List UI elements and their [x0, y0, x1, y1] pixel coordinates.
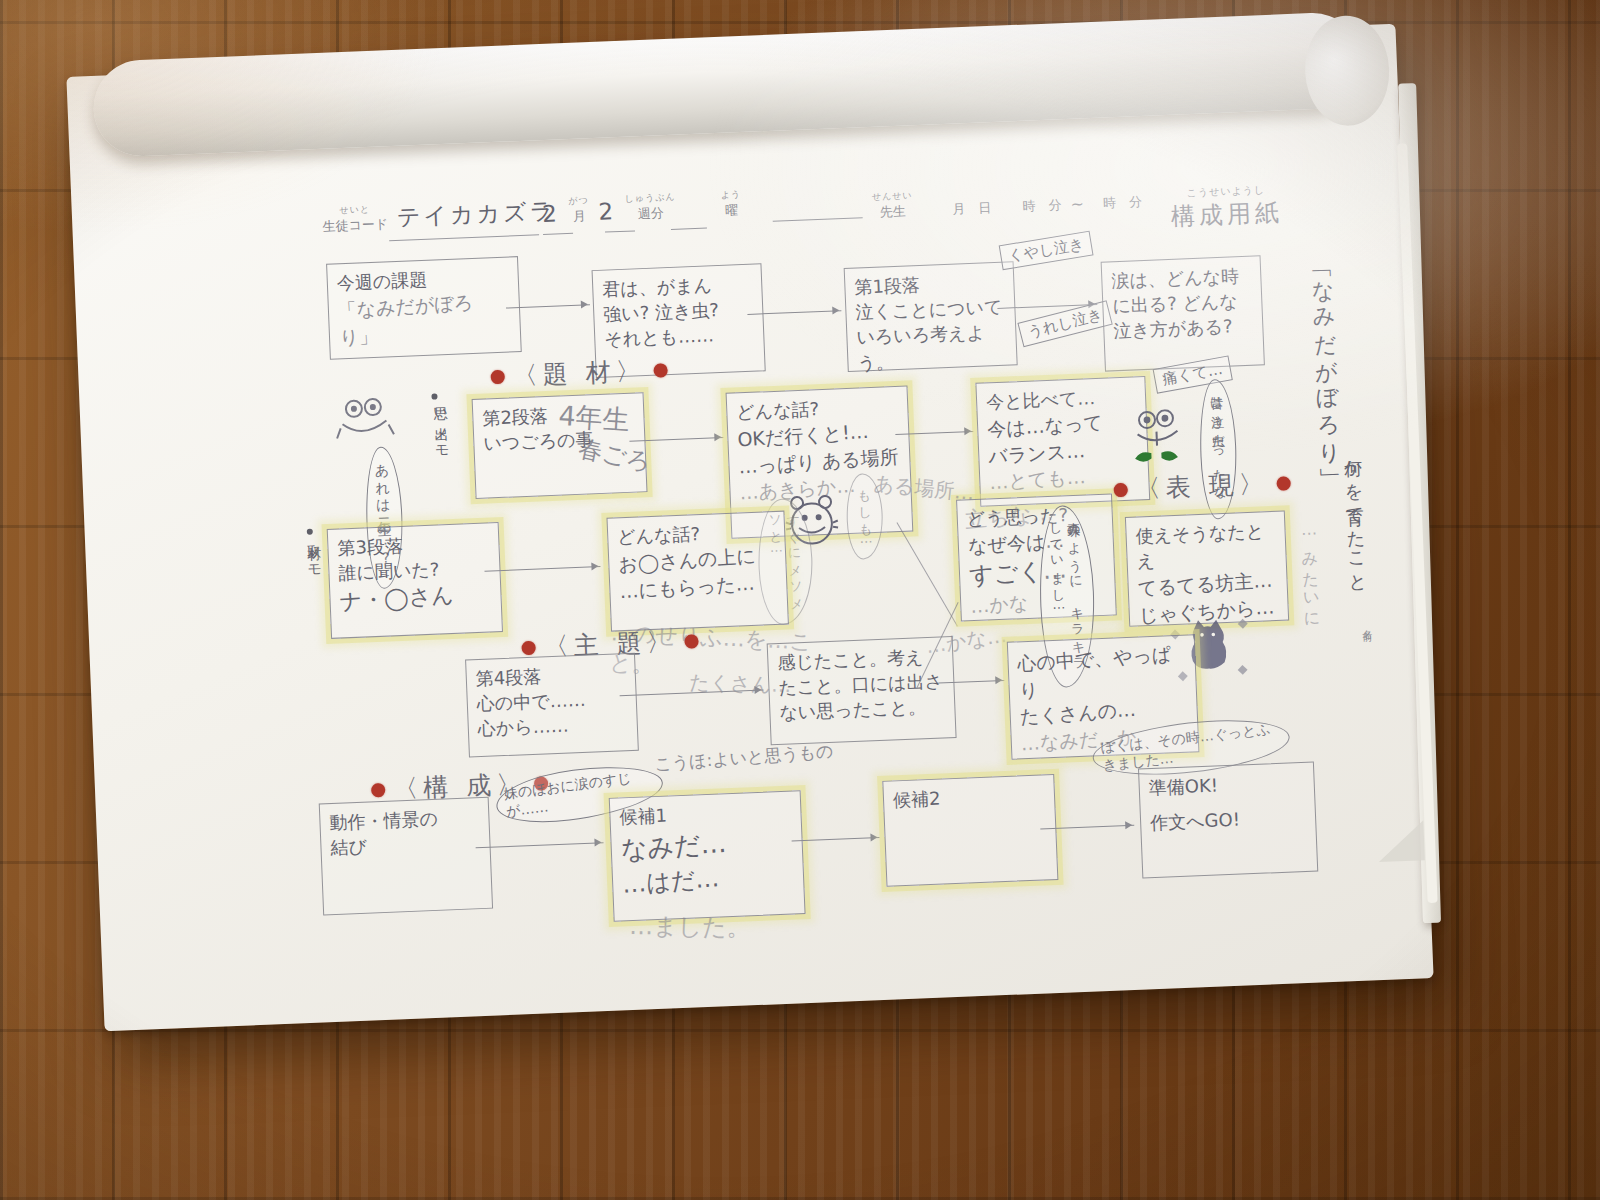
header-teacher-time: せんせい先生 月 日 時 分 ~ 時 分 [772, 180, 1147, 226]
month-value: 2 [542, 200, 561, 227]
min2-label: 分 [1129, 193, 1143, 212]
ending-line2: 結び [330, 829, 481, 860]
tag-kuyashinaki: くやし泣き [999, 231, 1094, 271]
shuzai-memo-label: 取材メモ [305, 533, 328, 654]
connector-line [896, 522, 957, 626]
teacher-ruby: せんせい [872, 189, 913, 204]
sparkle-icon [1238, 665, 1248, 675]
similes-title: 使えそうなたとえ [1135, 518, 1277, 574]
hour1-label: 時 [1022, 197, 1036, 216]
section-daizai-label: 〈題 材〉 [512, 354, 646, 392]
day-ruby: よう [721, 188, 742, 202]
red-dot [490, 369, 505, 384]
header-date: 2 がつ月 2 しゅうぶん週分 よう曜 [542, 188, 747, 227]
pencil-under-candidate1: …ました。 [629, 910, 751, 943]
tears-line3: 泣き方がある? [1113, 313, 1254, 344]
red-dot [521, 640, 536, 655]
day-label: 曜 [725, 201, 739, 220]
underline [389, 234, 539, 241]
weekly-task-theme: 「なみだがぼろり」 [337, 286, 512, 350]
min1-label: 分 [1048, 196, 1062, 215]
pencil-4th-grade: 4年生 [557, 398, 630, 439]
box-paragraph-3: 第3段落 誰に聞いた? ナ・◯さん [327, 522, 503, 639]
box-tears-when: 涙は、どんな時 に出る? どんな 泣き方がある? [1101, 255, 1265, 371]
candidate2-title: 候補2 [893, 781, 1046, 812]
month-ruby: がつ [568, 194, 589, 208]
box-what-story-2: どんな話? お◯さんの上に …にもらった… [606, 511, 788, 632]
note-kouho: こうほ:よいと思うもの [654, 740, 835, 776]
ready-line2: 作文へGO! [1150, 804, 1307, 835]
red-dot [371, 782, 386, 797]
box-weekly-task: 今週の課題 「なみだがぼろり」 [326, 256, 522, 360]
paper-curl-roll [92, 11, 1363, 158]
section-hyogen: 〈表 現〉 [1113, 466, 1291, 506]
box-ending: 動作・情景の 結び [319, 797, 493, 916]
sheet-title-block: こうせいようし 構成用紙 [1170, 182, 1284, 232]
box-feelings: 感じたこと。考え たこと。口には出さ ない思ったこと。 [767, 636, 957, 745]
hour2-label: 時 [1103, 194, 1117, 213]
box-paragraph-4: 第4段落 心の中で…… 心から…… [465, 653, 639, 758]
day2-label: 日 [978, 199, 992, 218]
page-stack-edge-2 [1397, 143, 1437, 903]
underline [773, 217, 863, 222]
box-ready-go: 準備OK! 作文へGO! [1138, 762, 1318, 879]
student-code-ruby: せいと [339, 203, 370, 217]
arrow [485, 566, 601, 572]
underline [543, 233, 573, 235]
box-candidate-2: 候補2 [882, 774, 1058, 887]
underline [671, 227, 707, 229]
margin-name-label: 名前 [1359, 621, 1375, 662]
para4-line3: 心から…… [477, 710, 628, 741]
student-code-value: テイカカズラ [396, 198, 556, 230]
doodle-smiling-frog [1129, 408, 1198, 475]
doodle-crying-frog [331, 396, 397, 455]
margin-subtitle-vertical: 何かを育てたこと [1340, 445, 1375, 716]
corner-fold [1377, 820, 1425, 862]
month2-label: 月 [952, 200, 966, 219]
paper-curl-end [1303, 14, 1391, 127]
feelings-line3: ない思ったこと。 [779, 694, 946, 726]
week-ruby: しゅうぶん [624, 191, 676, 206]
arrow [792, 837, 880, 842]
paper-pad: せいと生徒コード テイカカズラ 2 がつ月 2 しゅうぶん週分 よう曜 せんせい… [66, 24, 1433, 1032]
arrow [476, 842, 604, 848]
red-dot [684, 634, 699, 649]
omoide-memo-label: 思い出メモ [431, 396, 455, 537]
teacher-label: 先生 [880, 202, 907, 221]
student-code-label: 生徒コード [322, 215, 388, 236]
ready-line1: 準備OK! [1148, 769, 1305, 800]
box-similes: 使えそうなたとえ てるてる坊主… じゃぐちから… [1125, 511, 1289, 627]
red-dot [1114, 482, 1129, 497]
section-daizai: 〈題 材〉 [490, 353, 668, 393]
section-hyogen-label: 〈表 現〉 [1135, 467, 1269, 505]
box-candidate-1: 候補1 なみだ… …はだ… [609, 790, 806, 922]
para1-line3: いろいろ考えよう。 [856, 319, 1008, 375]
month-label: 月 [572, 207, 586, 226]
box-paragraph-1: 第1段落 泣くことについて いろいろ考えよう。 [844, 261, 1018, 372]
underline [605, 230, 635, 232]
red-dot [653, 363, 668, 378]
q-line3: それとも…… [604, 321, 755, 352]
tilde: ~ [1070, 194, 1084, 214]
sheet-title: 構成用紙 [1170, 196, 1283, 232]
week-value: 2 [598, 198, 617, 225]
page-stack-edge [1398, 83, 1441, 923]
week-label: 週分 [637, 204, 664, 223]
red-dot [1276, 476, 1291, 491]
header-student-code: せいと生徒コード テイカカズラ [318, 196, 557, 237]
